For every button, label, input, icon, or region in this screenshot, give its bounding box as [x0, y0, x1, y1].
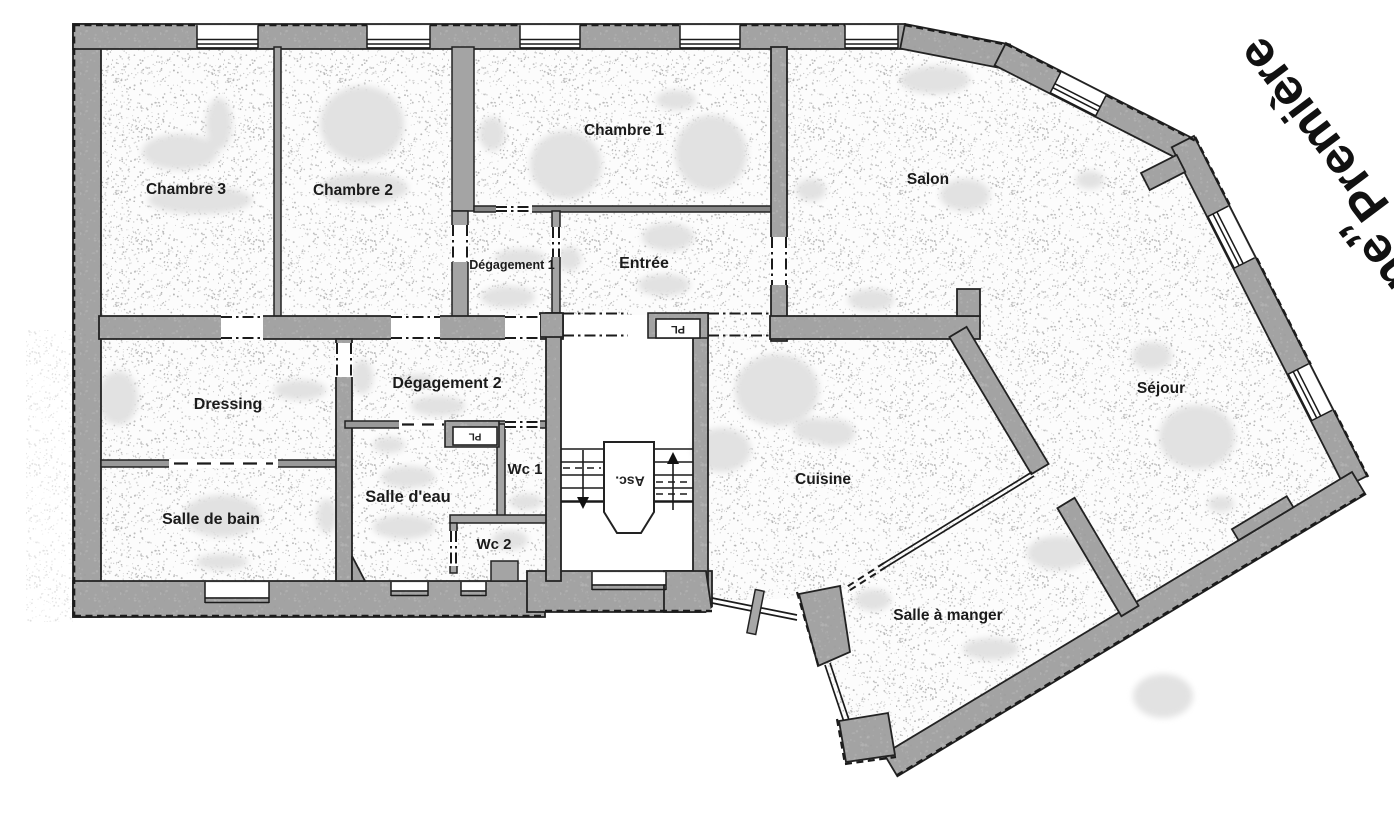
svg-text:Chambre 2: Chambre 2	[313, 182, 393, 199]
svg-text:Chambre 1: Chambre 1	[584, 122, 664, 139]
svg-text:Entrée: Entrée	[619, 255, 669, 272]
svg-text:Première: Première	[1226, 27, 1394, 232]
svg-text:Dégagement 2: Dégagement 2	[392, 375, 501, 392]
svg-text:Wc 2: Wc 2	[476, 536, 511, 553]
svg-text:Salon: Salon	[907, 171, 949, 188]
svg-text:Asc.: Asc.	[615, 473, 645, 489]
svg-text:Séjour: Séjour	[1137, 380, 1185, 397]
svg-text:Wc 1: Wc 1	[507, 461, 542, 478]
svg-text:PL: PL	[671, 323, 685, 335]
svg-text:Salle d'eau: Salle d'eau	[365, 488, 451, 506]
svg-text:agne’’: agne’’	[1328, 202, 1394, 350]
svg-text:Salle de bain: Salle de bain	[162, 511, 260, 528]
svg-text:Cuisine: Cuisine	[795, 471, 851, 488]
svg-text:Dressing: Dressing	[194, 396, 262, 413]
svg-text:Salle à manger: Salle à manger	[893, 607, 1002, 624]
svg-text:PL: PL	[469, 430, 482, 441]
svg-text:Chambre 3: Chambre 3	[146, 181, 226, 198]
svg-text:Dégagement 1: Dégagement 1	[469, 258, 554, 272]
